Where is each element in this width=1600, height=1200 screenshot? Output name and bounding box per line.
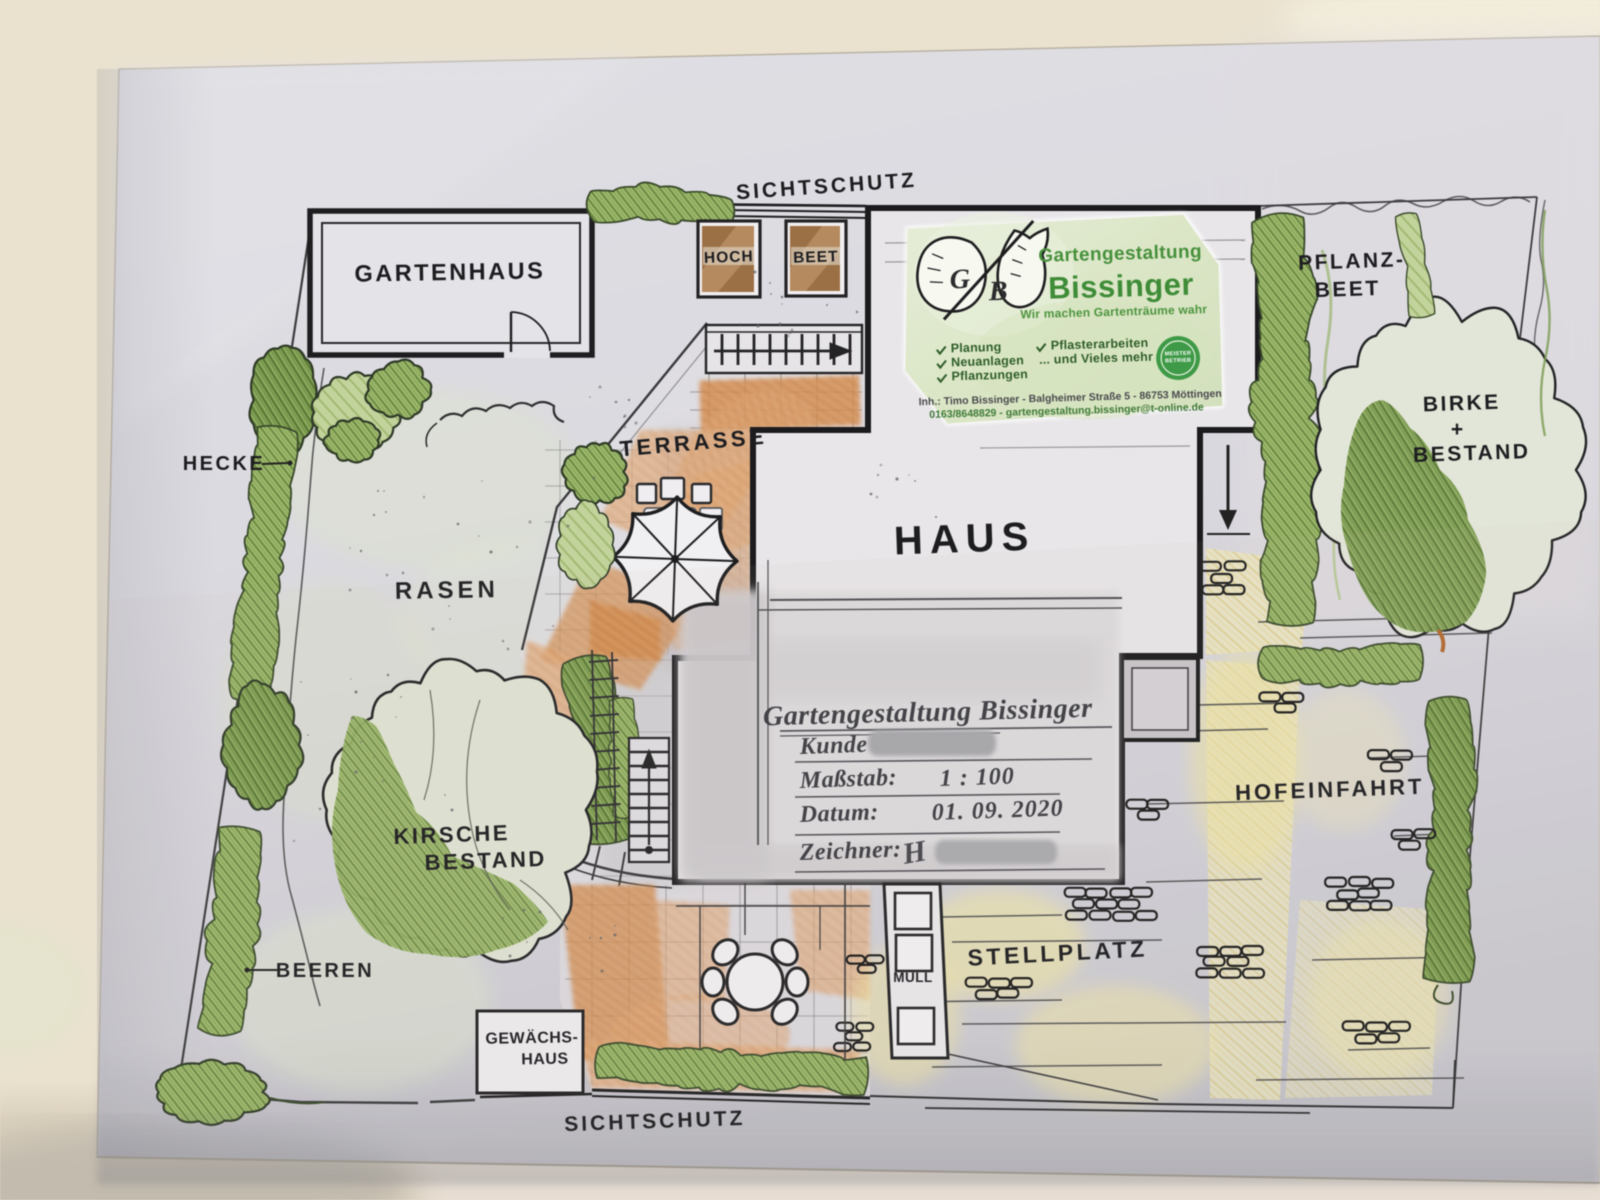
svg-text:Pflanzungen: Pflanzungen: [951, 367, 1028, 383]
svg-text:Bissinger: Bissinger: [1048, 267, 1195, 306]
svg-text:PFLANZ-: PFLANZ-: [1298, 248, 1406, 275]
svg-text:BESTAND: BESTAND: [1413, 440, 1531, 467]
svg-text:HECKE: HECKE: [183, 453, 266, 475]
svg-text:BETRIEB: BETRIEB: [1165, 358, 1191, 365]
svg-text:BEET: BEET: [1314, 277, 1381, 302]
svg-text:+: +: [1451, 418, 1465, 441]
svg-text:HOCH: HOCH: [704, 248, 754, 267]
svg-text:BIRKE: BIRKE: [1422, 391, 1501, 417]
svg-text:MEISTER: MEISTER: [1165, 351, 1192, 358]
svg-text:GARTENHAUS: GARTENHAUS: [354, 257, 545, 286]
svg-text:B: B: [987, 276, 1008, 308]
svg-text:G: G: [949, 264, 970, 296]
svg-text:BEET: BEET: [793, 248, 839, 267]
svg-text:Planung: Planung: [951, 340, 1002, 355]
